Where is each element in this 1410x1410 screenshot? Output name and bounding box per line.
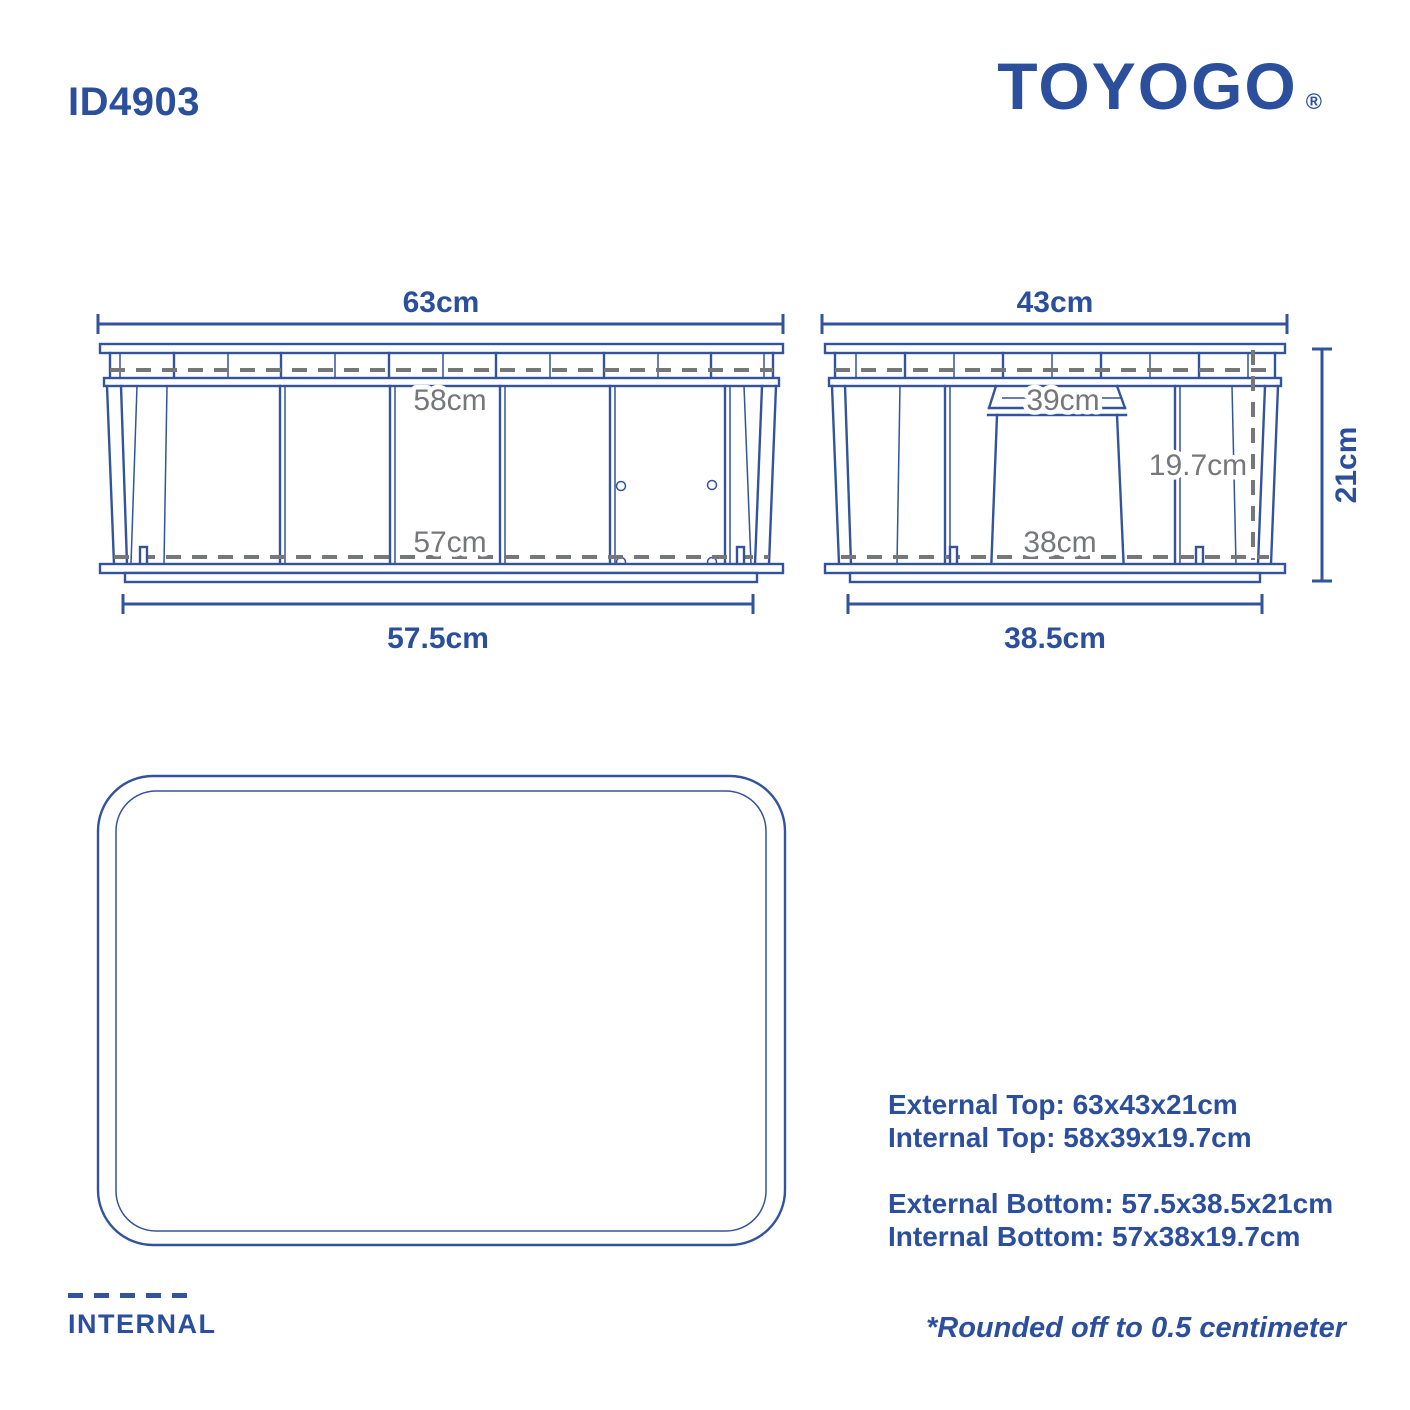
- front-internal-bottom-width-label: 57cm: [413, 526, 486, 559]
- front-internal-top-width-label: 58cm: [413, 384, 486, 417]
- top-view-outer-outline: [98, 776, 785, 1245]
- side-internal-top-depth-label: 39cm: [1026, 384, 1099, 417]
- side-internal-height-label: 19.7cm: [1149, 449, 1247, 482]
- front-external-top-width-label: 63cm: [403, 286, 480, 319]
- front-external-bottom-width-label: 57.5cm: [387, 622, 489, 655]
- side-external-bottom-dimension: 38.5cm: [848, 594, 1262, 655]
- bottom-specs-group: External Bottom: 57.5x38.5x21cm Internal…: [888, 1187, 1333, 1253]
- rounding-footnote: *Rounded off to 0.5 centimeter: [926, 1312, 1346, 1345]
- dimension-specs: External Top: 63x43x21cm Internal Top: 5…: [888, 1088, 1333, 1253]
- front-elevation-view: 63cm: [98, 286, 783, 655]
- legend-label: INTERNAL: [68, 1309, 217, 1340]
- spec-external-bottom: External Bottom: 57.5x38.5x21cm: [888, 1187, 1333, 1220]
- front-vent-holes: [617, 481, 717, 567]
- side-external-height-dimension: 21cm: [1312, 349, 1363, 581]
- spec-external-top: External Top: 63x43x21cm: [888, 1088, 1333, 1121]
- side-external-height-label: 21cm: [1330, 427, 1363, 504]
- side-external-top-depth-label: 43cm: [1017, 286, 1094, 319]
- front-external-bottom-dimension: 57.5cm: [123, 594, 753, 655]
- side-top-band-ribs: [835, 353, 1275, 378]
- dashed-line-swatch: [68, 1293, 192, 1298]
- top-plan-view: [98, 776, 785, 1245]
- side-external-bottom-depth-label: 38.5cm: [1004, 622, 1106, 655]
- spec-internal-top: Internal Top: 58x39x19.7cm: [888, 1121, 1333, 1154]
- internal-line-legend: INTERNAL: [68, 1293, 217, 1340]
- side-elevation-view: 43cm: [822, 286, 1363, 655]
- side-internal-bottom-depth-label: 38cm: [1023, 526, 1096, 559]
- side-external-top-dimension: 43cm: [822, 286, 1287, 334]
- front-top-band-ribs: [110, 353, 773, 378]
- spec-internal-bottom: Internal Bottom: 57x38x19.7cm: [888, 1220, 1333, 1253]
- front-external-top-dimension: 63cm: [98, 286, 783, 334]
- top-view-inner-outline: [116, 791, 766, 1231]
- top-specs-group: External Top: 63x43x21cm Internal Top: 5…: [888, 1088, 1333, 1154]
- product-datasheet: ID4903 TOYOGO ® 63cm: [0, 0, 1410, 1410]
